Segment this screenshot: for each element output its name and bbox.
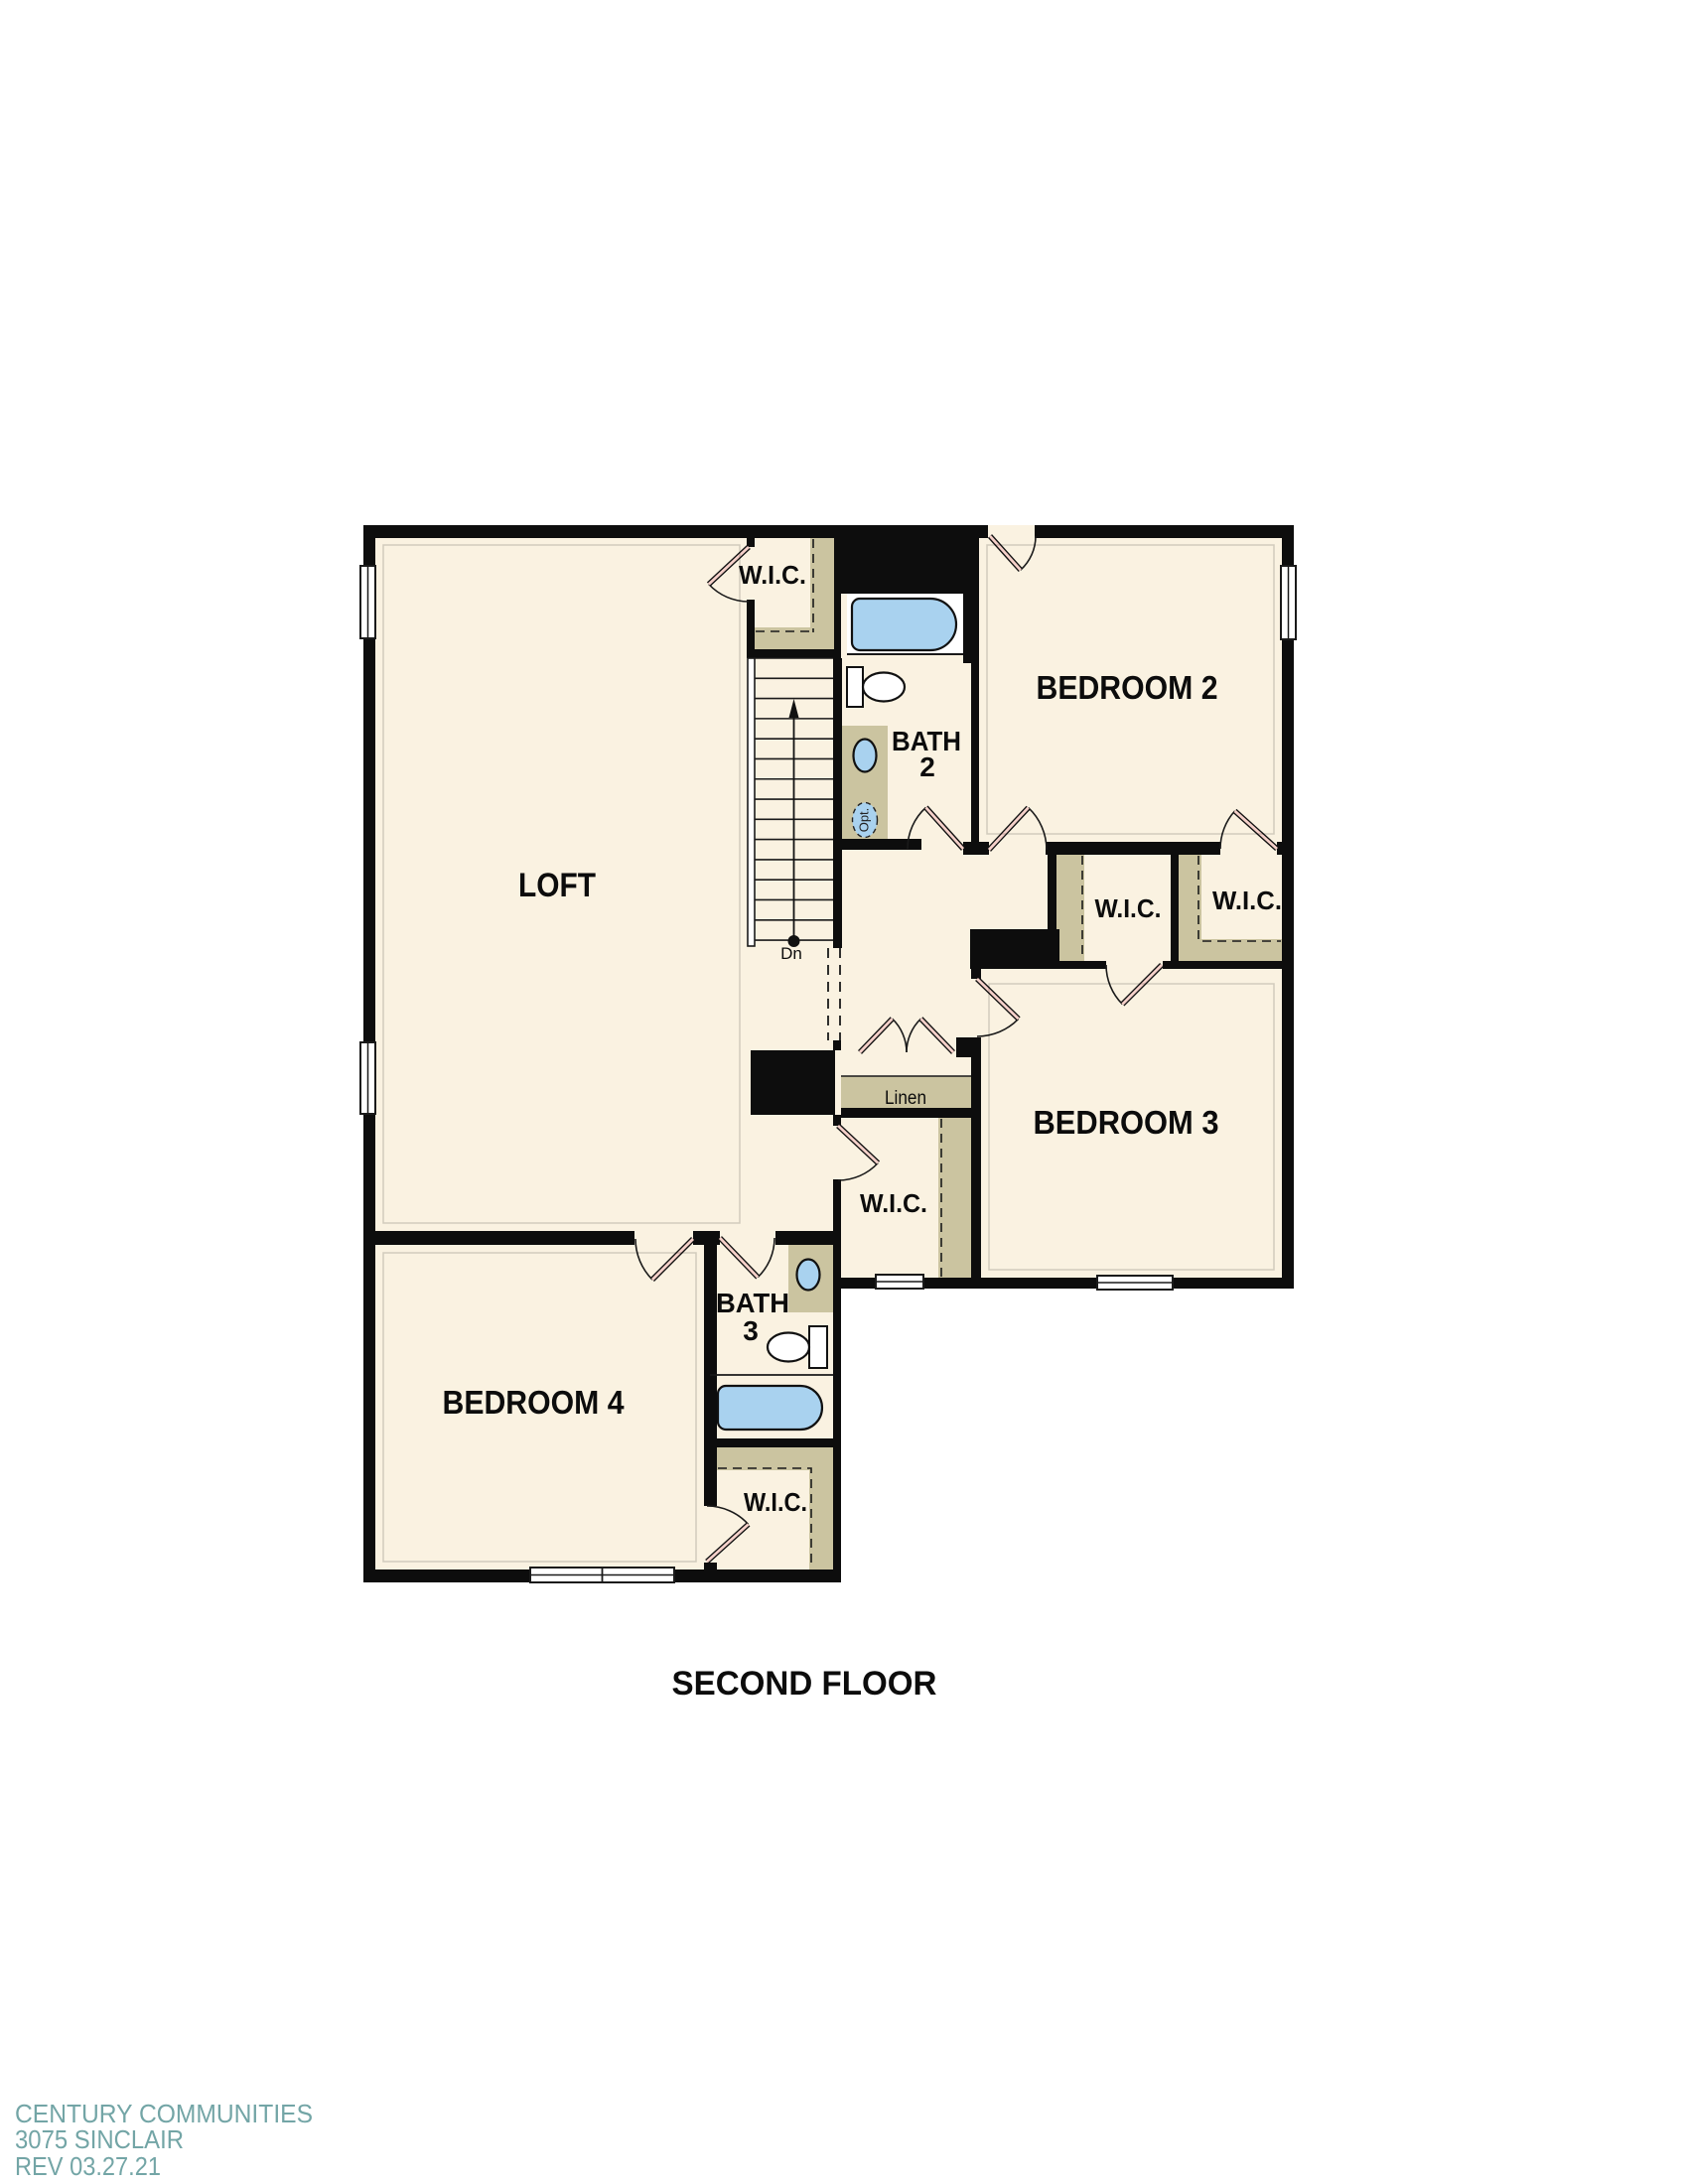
svg-text:3075 SINCLAIR: 3075 SINCLAIR (15, 2124, 184, 2154)
svg-text:BEDROOM 2: BEDROOM 2 (1037, 669, 1218, 706)
svg-text:2: 2 (919, 751, 935, 782)
svg-text:Dn: Dn (780, 944, 802, 963)
svg-text:SECOND FLOOR: SECOND FLOOR (672, 1665, 937, 1703)
svg-text:Linen: Linen (885, 1088, 926, 1109)
svg-text:BATH: BATH (716, 1288, 789, 1318)
svg-text:Opt.: Opt. (856, 808, 871, 833)
svg-text:W.I.C.: W.I.C. (1212, 886, 1282, 915)
svg-text:W.I.C.: W.I.C. (1095, 893, 1162, 923)
svg-text:3: 3 (743, 1315, 759, 1346)
svg-text:BEDROOM 4: BEDROOM 4 (443, 1384, 626, 1421)
svg-text:LOFT: LOFT (518, 867, 596, 904)
svg-text:BEDROOM 3: BEDROOM 3 (1034, 1104, 1219, 1141)
svg-text:W.I.C.: W.I.C. (744, 1487, 807, 1517)
svg-text:W.I.C.: W.I.C. (739, 560, 806, 590)
svg-text:REV 03.27.21: REV 03.27.21 (15, 2151, 161, 2181)
svg-text:W.I.C.: W.I.C. (860, 1188, 927, 1218)
